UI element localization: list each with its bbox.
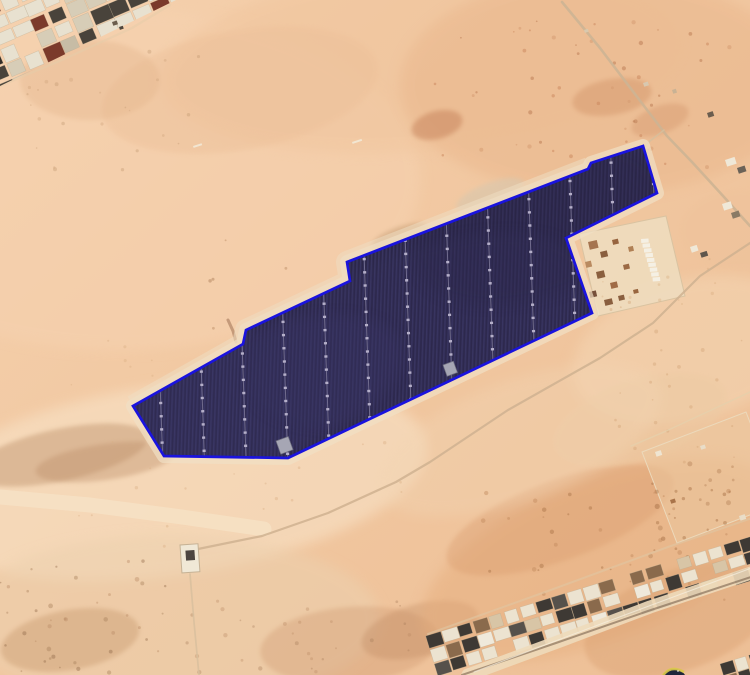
satellite-map-canvas[interactable]: [0, 0, 750, 675]
satellite-imagery: [0, 0, 750, 675]
desert-outpost: [180, 544, 200, 573]
